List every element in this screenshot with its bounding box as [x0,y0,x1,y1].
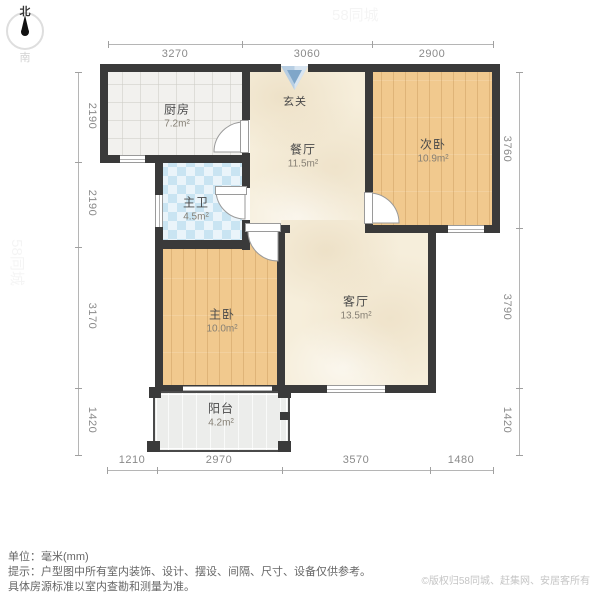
dim-bottom-4: 1480 [436,454,486,466]
dim-tick [430,467,431,474]
dim-right-2: 3790 [501,287,513,327]
kitchen-label: 厨房 [164,101,190,118]
dim-tick [372,41,373,48]
dim-bottom-2: 2970 [194,454,244,466]
bedroom1-door-arc [248,231,278,261]
bedroom2-door-leaf [365,193,373,224]
compass-south-label: 南 [20,49,31,65]
dim-left-4: 1420 [86,400,98,440]
dim-tick [493,467,494,474]
dim-right-1: 3760 [501,129,513,169]
dim-left-3: 3170 [86,296,98,336]
dim-tick [516,388,523,389]
dim-top-1: 3270 [150,48,200,60]
dim-line-left [78,72,79,455]
dim-line-bottom [107,470,493,471]
dim-left-1: 2190 [86,96,98,136]
dim-top-2: 3060 [282,48,332,60]
bedroom1-label: 主卧 [209,306,235,323]
dim-tick [516,228,523,229]
watermark-text: 58同城 [332,4,379,25]
compass-north-label: 北 [20,3,31,19]
dim-right-3: 1420 [501,400,513,440]
dim-tick [157,467,158,474]
dim-tick [75,162,82,163]
dim-tick [75,247,82,248]
footer-unit: 单位：毫米(mm) [8,548,89,564]
kitchen-door-leaf [241,121,249,153]
dim-line-top [108,44,493,45]
footer-tip2: 具体房源标准以室内查勘和测量为准。 [8,578,195,594]
dim-tick [75,455,82,456]
dim-tick [282,467,283,474]
dim-tick [493,41,494,48]
kitchen-door-arc [214,122,244,152]
footer-tip1: 提示：户型图中所有室内装饰、设计、摆设、间隔、尺寸、设备仅供参考。 [8,563,371,579]
dim-tick [75,388,82,389]
compass-dot-icon [21,28,29,36]
bedroom2-door-arc [369,193,399,223]
bedroom2-area: 10.9m² [417,154,448,165]
dim-tick [107,467,108,474]
living-area: 13.5m² [340,311,371,322]
bathroom-label: 主卫 [183,194,209,211]
dim-top-3: 2900 [407,48,457,60]
dim-left-2: 2190 [86,183,98,223]
dining-label: 餐厅 [290,141,316,158]
bedroom1-area: 10.0m² [206,324,237,335]
entry-label: 玄关 [283,93,307,109]
footer-copyright: ©版权归58同城、赶集网、安居客所有 [422,572,591,587]
watermark-text: 58同城 [440,332,487,353]
watermark-text: 58同城 [7,239,28,286]
dim-bottom-1: 1210 [107,454,157,466]
dim-tick [516,455,523,456]
dim-bottom-3: 3570 [331,454,381,466]
dining-area: 11.5m² [288,159,318,170]
balcony-area: 4.2m² [208,418,234,429]
bathroom-area: 4.5m² [183,212,209,223]
bedroom1-door-leaf [246,224,281,232]
bedroom2-label: 次卧 [420,136,446,153]
living-label: 客厅 [343,293,369,310]
floor-plan-page: 厨房 7.2m² 玄关 餐厅 11.5m² 次卧 10.9m² 主卫 4.5m²… [0,0,600,600]
dim-tick [75,72,82,73]
kitchen-area: 7.2m² [164,119,190,130]
dim-tick [108,41,109,48]
bathroom-door-leaf [216,187,247,195]
dim-tick [242,41,243,48]
balcony-label: 阳台 [208,400,234,417]
dim-line-right [519,72,520,455]
dim-tick [516,72,523,73]
